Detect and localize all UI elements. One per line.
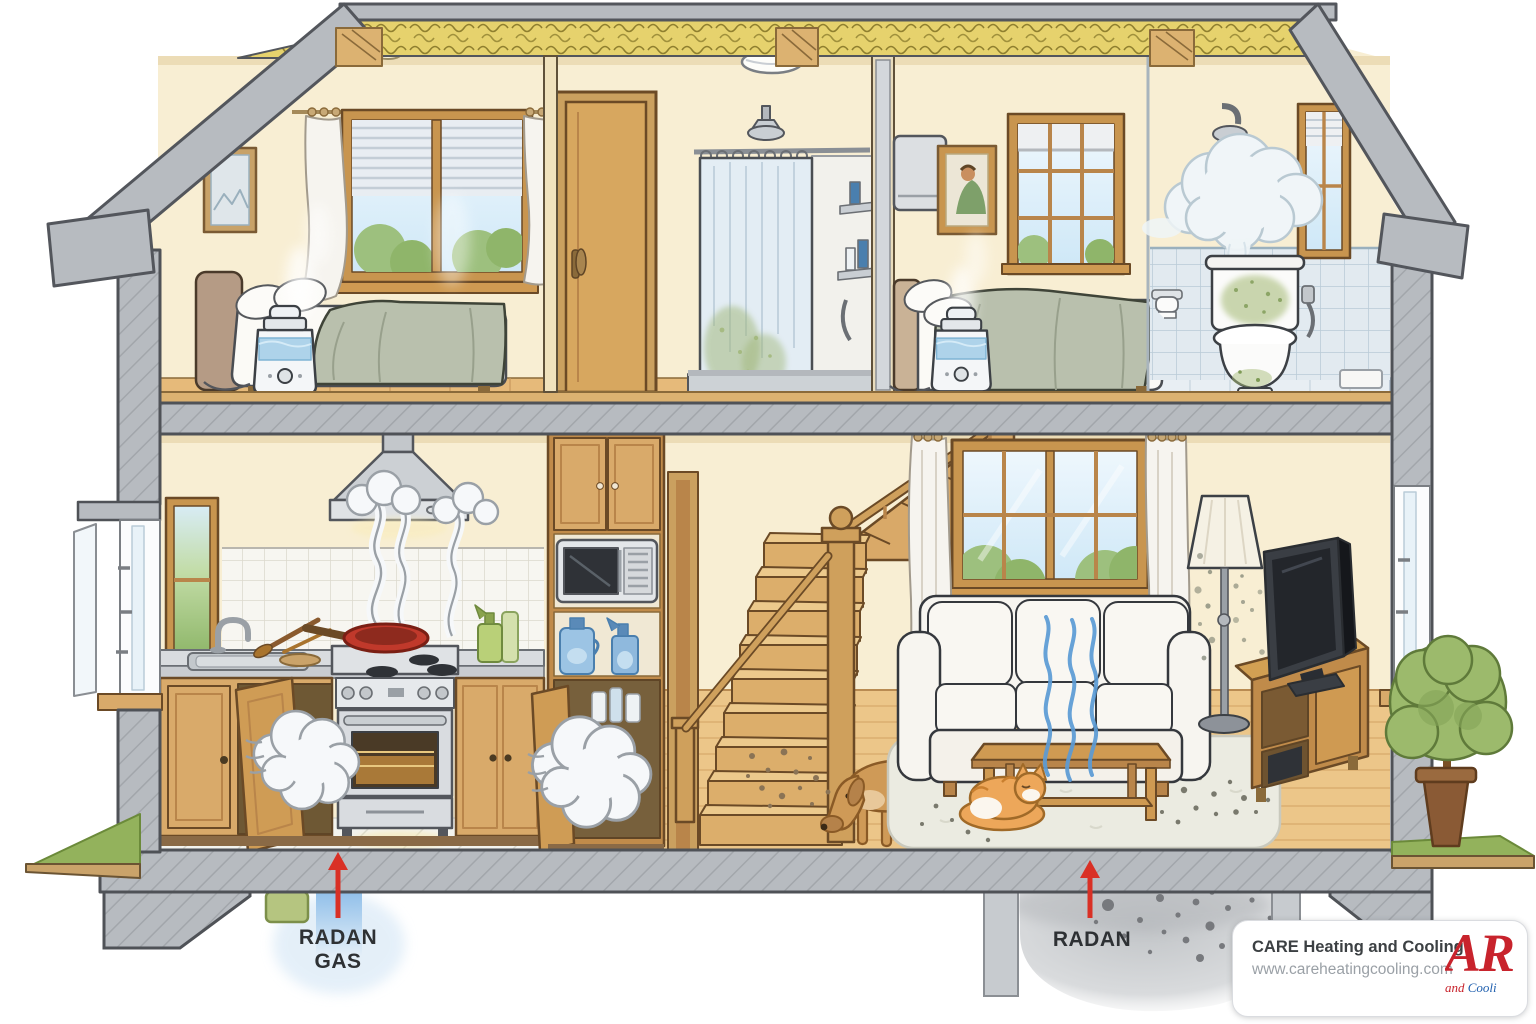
- company-name: CARE Heating and Cooling: [1252, 938, 1443, 957]
- footing-left: [104, 892, 250, 948]
- company-logo: AR and Cooli: [1445, 929, 1525, 1015]
- logo-card: CARE Heating and Cooling www.careheating…: [1232, 920, 1528, 1017]
- logo-letters: AR: [1445, 929, 1525, 979]
- living-room-window: [946, 440, 1161, 611]
- radon-label: RADAN: [1022, 928, 1162, 952]
- wall-duct: [872, 56, 894, 392]
- grass-left: [26, 814, 140, 878]
- first-floor: [158, 408, 1390, 852]
- left-wall: [74, 250, 162, 852]
- house-cutaway-screenshot: RADAN GAS RADAN CARE Heating and Cooling…: [0, 0, 1536, 1024]
- mid-floor-slab: [120, 403, 1428, 434]
- company-website: www.careheatingcooling.com: [1252, 961, 1443, 979]
- ground-slab: [100, 850, 1432, 892]
- radon-gas-line2: GAS: [262, 950, 414, 974]
- floor-scale: [1340, 370, 1382, 388]
- radon-gas-line1: RADAN: [262, 926, 414, 950]
- subfloor-edge: [120, 392, 1428, 403]
- shower-curtain: [700, 158, 812, 390]
- hall-door: [556, 92, 656, 392]
- logo-tagline: and Cooli: [1445, 980, 1525, 996]
- soil-gas-block: [266, 892, 308, 922]
- eave-left: [48, 210, 154, 286]
- wall-art: [938, 146, 996, 234]
- roof-cap: [340, 4, 1336, 20]
- bedroom-window: [1002, 114, 1130, 274]
- shower-tray: [688, 374, 880, 392]
- microwave: [557, 540, 657, 602]
- second-floor: [118, 34, 1420, 397]
- house-cutaway-illustration: [0, 0, 1536, 1024]
- foundation-pier: [984, 892, 1018, 996]
- open-sash: [74, 524, 96, 696]
- radon-gas-label: RADAN GAS: [262, 926, 414, 973]
- pantry-column: [528, 432, 664, 852]
